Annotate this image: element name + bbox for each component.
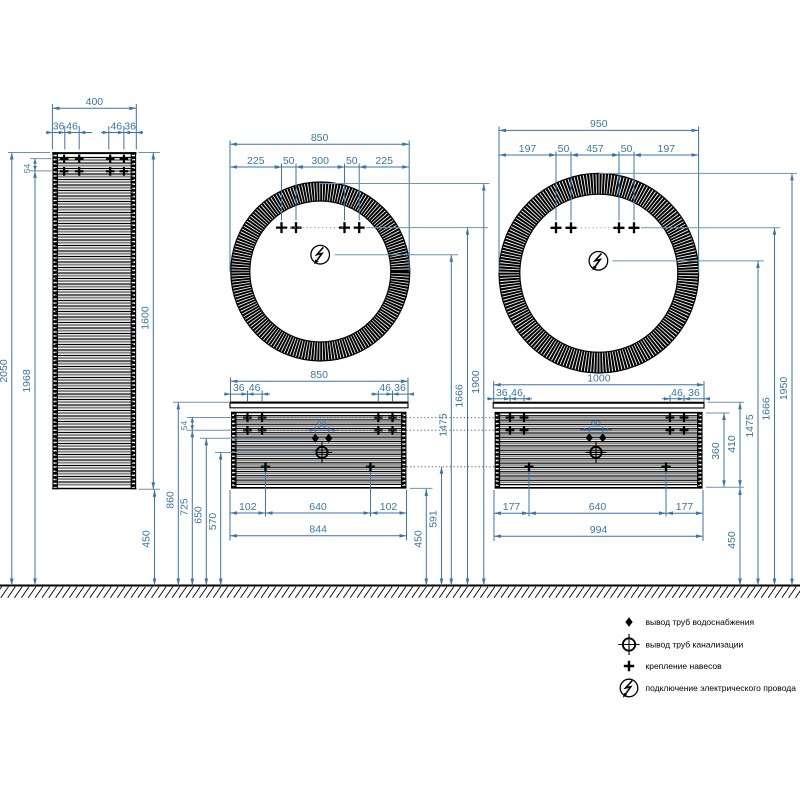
svg-text:36: 36 bbox=[53, 121, 65, 133]
svg-text:подключение электрического про: подключение электрического провода bbox=[646, 683, 797, 693]
svg-text:457: 457 bbox=[586, 143, 604, 155]
svg-text:640: 640 bbox=[589, 501, 607, 513]
svg-text:1900: 1900 bbox=[470, 370, 482, 394]
svg-text:860: 860 bbox=[165, 491, 177, 509]
svg-text:90: 90 bbox=[317, 419, 327, 429]
svg-text:вывод труб водоснабжения: вывод труб водоснабжения bbox=[646, 617, 755, 627]
svg-text:1950: 1950 bbox=[778, 377, 790, 401]
svg-text:450: 450 bbox=[726, 531, 738, 549]
svg-text:102: 102 bbox=[239, 501, 257, 513]
svg-text:46: 46 bbox=[379, 382, 391, 394]
svg-text:850: 850 bbox=[310, 369, 328, 381]
svg-text:300: 300 bbox=[311, 155, 329, 167]
svg-text:1600: 1600 bbox=[140, 306, 152, 330]
svg-text:54: 54 bbox=[22, 164, 32, 174]
svg-text:225: 225 bbox=[375, 155, 393, 167]
svg-text:177: 177 bbox=[676, 501, 694, 513]
svg-text:844: 844 bbox=[309, 524, 327, 536]
svg-text:450: 450 bbox=[141, 530, 153, 548]
svg-text:36: 36 bbox=[233, 382, 245, 394]
svg-text:1000: 1000 bbox=[587, 373, 611, 385]
svg-text:1968: 1968 bbox=[21, 369, 33, 393]
svg-text:994: 994 bbox=[590, 524, 608, 536]
svg-text:1666: 1666 bbox=[454, 384, 466, 408]
svg-text:46: 46 bbox=[511, 387, 523, 399]
svg-text:225: 225 bbox=[247, 155, 265, 167]
svg-text:46: 46 bbox=[671, 387, 683, 399]
svg-text:640: 640 bbox=[309, 501, 327, 513]
svg-text:197: 197 bbox=[658, 143, 676, 155]
svg-text:50: 50 bbox=[558, 143, 570, 155]
svg-text:177: 177 bbox=[503, 501, 521, 513]
svg-text:410: 410 bbox=[726, 435, 738, 453]
svg-text:591: 591 bbox=[428, 510, 440, 528]
svg-text:крепление навесов: крепление навесов bbox=[646, 661, 723, 671]
svg-text:50: 50 bbox=[283, 155, 295, 167]
svg-text:360: 360 bbox=[710, 442, 722, 460]
svg-text:вывод труб канализации: вывод труб канализации bbox=[646, 640, 744, 650]
svg-text:1475: 1475 bbox=[438, 413, 450, 437]
svg-text:950: 950 bbox=[590, 118, 608, 130]
svg-text:450: 450 bbox=[413, 530, 425, 548]
svg-text:54: 54 bbox=[179, 421, 189, 431]
svg-text:36: 36 bbox=[394, 382, 406, 394]
svg-text:90: 90 bbox=[591, 419, 601, 429]
svg-text:197: 197 bbox=[519, 143, 537, 155]
svg-text:570: 570 bbox=[207, 513, 219, 531]
svg-text:1475: 1475 bbox=[744, 414, 756, 438]
svg-text:50: 50 bbox=[621, 143, 633, 155]
svg-text:850: 850 bbox=[311, 132, 329, 144]
svg-text:36: 36 bbox=[124, 121, 136, 133]
svg-text:650: 650 bbox=[193, 506, 205, 524]
svg-text:46: 46 bbox=[66, 121, 78, 133]
svg-text:2050: 2050 bbox=[0, 359, 10, 383]
svg-text:46: 46 bbox=[110, 121, 122, 133]
svg-text:725: 725 bbox=[179, 498, 191, 516]
svg-text:50: 50 bbox=[346, 155, 358, 167]
svg-text:102: 102 bbox=[380, 501, 398, 513]
svg-text:36: 36 bbox=[688, 387, 700, 399]
svg-text:46: 46 bbox=[249, 382, 261, 394]
svg-text:400: 400 bbox=[86, 96, 104, 108]
svg-text:36: 36 bbox=[496, 387, 508, 399]
svg-text:1666: 1666 bbox=[761, 397, 773, 421]
